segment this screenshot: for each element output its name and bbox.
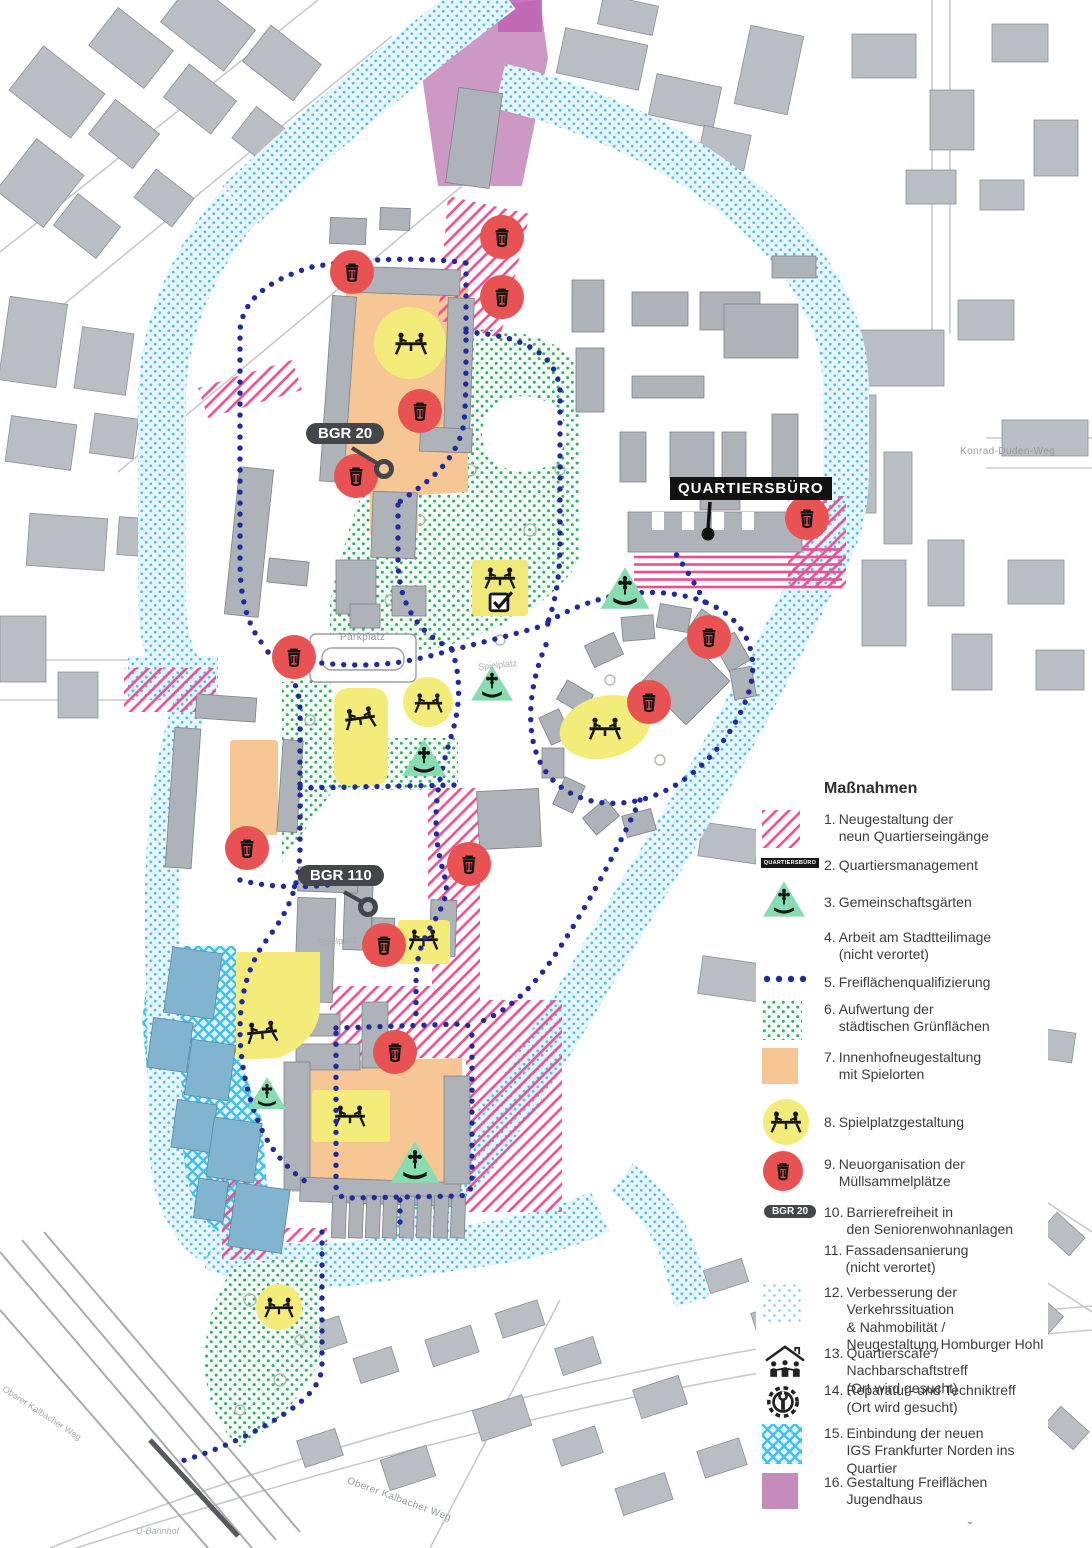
legend-label: Arbeit am Stadtteilimage (nicht verortet… (839, 929, 1048, 964)
legend-num: 1. (824, 811, 836, 846)
legend-label: Gestaltung Freiflächen Jugendhaus (846, 1474, 1048, 1509)
legend-label: Aufwertung der städtischen Grünflächen (839, 1001, 1048, 1036)
trash-marker (627, 680, 671, 724)
legend-num: 9. (824, 1156, 836, 1191)
trash-marker (398, 389, 442, 433)
legend-label: Neugestaltung der neun Quartierseingänge (839, 811, 1048, 846)
legend-num: 7. (824, 1049, 836, 1084)
legend-label: Fassadensanierung (nicht verortet) (845, 1242, 1048, 1277)
legend-label: Einbindung der neuen IGS Frankfurter Nor… (846, 1425, 1048, 1477)
legend-title: Maßnahmen (824, 780, 917, 798)
legend-num: 3. (824, 894, 836, 911)
pond (482, 396, 566, 472)
parkplatz-label: Parkplatz (340, 632, 385, 643)
trash-marker (687, 615, 731, 659)
legend-num: 8. (824, 1114, 836, 1131)
legend-label: Spielplatzgestaltung (839, 1114, 1048, 1131)
street-konrad-duden-weg: Konrad-Duden-Weg (960, 446, 1055, 457)
trash-marker (362, 923, 406, 967)
legend-num: 6. (824, 1001, 836, 1036)
trash-marker (373, 1030, 417, 1074)
legend-label: Innenhofneugestaltung mit Spielorten (839, 1049, 1048, 1084)
quartiersbuero-badge-icon: QUARTIERSBÜRO (761, 858, 819, 868)
u-bahnhof-label: U-Bahnhof (136, 1526, 179, 1536)
trash-marker (447, 842, 491, 886)
legend-num: 2. (824, 857, 836, 874)
legend-label: Verbesserung der Verkehrssituation & Nah… (846, 1284, 1048, 1353)
legend-num: 16. (824, 1474, 843, 1509)
trash-marker (480, 215, 524, 259)
legend-num: 4. (824, 929, 836, 964)
bgr-badge-icon: BGR 20 (764, 1205, 816, 1218)
legend-panel: Maßnahmen 1.Neugestaltung der neun Quart… (756, 770, 1048, 1522)
bgr20-label: BGR 20 (306, 423, 384, 444)
trash-marker (330, 250, 374, 294)
legend-label: Neuorganisation der Müllsammelplätze (839, 1156, 1048, 1191)
legend-num: 15. (824, 1425, 843, 1477)
trash-marker (272, 635, 316, 679)
legend-num: 12. (824, 1284, 843, 1353)
legend-num: 11. (824, 1242, 842, 1277)
quartiersbuero-label: QUARTIERSBÜRO (670, 477, 832, 500)
trash-marker (225, 826, 269, 870)
bgr110-label: BGR 110 (298, 865, 384, 886)
trash-marker (785, 496, 829, 540)
legend-num: 5. (824, 974, 836, 991)
legend-label: Freiflächenqualifizierung (839, 974, 1048, 991)
legend-label: Reparatur- und Techniktreff (Ort wird ge… (846, 1382, 1048, 1417)
trash-marker (480, 275, 524, 319)
legend-label: Quartiersmanagement (839, 857, 1048, 874)
legend-num: 10. (824, 1204, 843, 1239)
legend-label: Barrierefreiheit in den Seniorenwohnanla… (846, 1204, 1048, 1239)
legend-label: Gemeinschaftsgärten (839, 894, 1048, 911)
legend-num: 14. (824, 1382, 843, 1417)
map-canvas: QUARTIERSBÜRO BGR 20 BGR 110 Parkplatz S… (0, 0, 1092, 1548)
